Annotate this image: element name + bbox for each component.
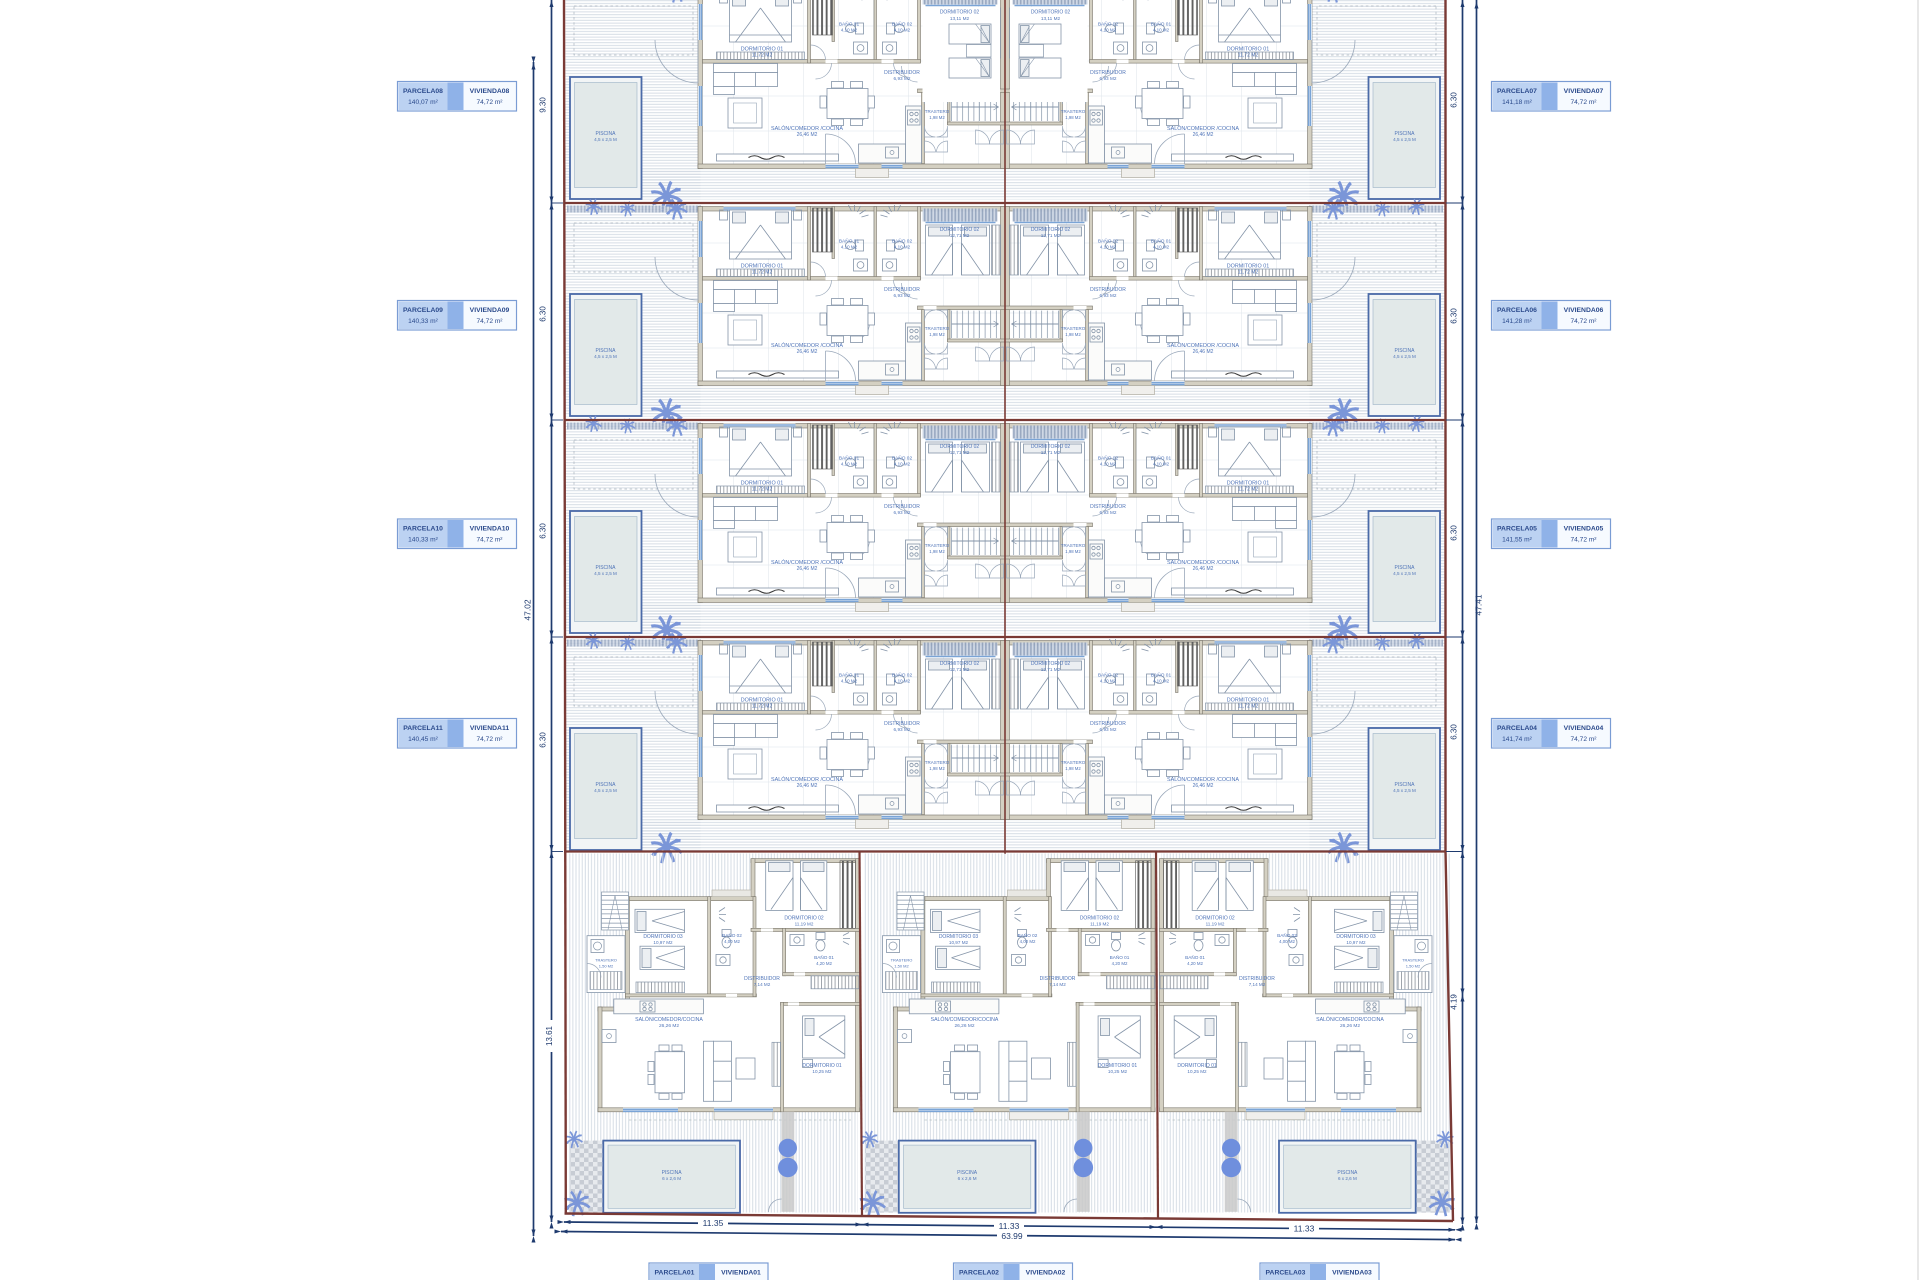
- svg-text:26,46 M2: 26,46 M2: [1193, 566, 1214, 572]
- svg-text:4,10 M2: 4,10 M2: [894, 462, 911, 467]
- svg-text:13,11 M2: 13,11 M2: [950, 16, 970, 21]
- svg-text:4,10 M2: 4,10 M2: [1100, 28, 1117, 33]
- svg-text:VIVIENDA01: VIVIENDA01: [721, 1270, 761, 1277]
- svg-text:74,72 m²: 74,72 m²: [1570, 99, 1597, 106]
- svg-text:11,19 M2: 11,19 M2: [1090, 922, 1109, 927]
- svg-text:10,97 M2: 10,97 M2: [653, 940, 673, 945]
- svg-text:10,25 M2: 10,25 M2: [812, 1069, 832, 1074]
- svg-text:DORMITORIO 02: DORMITORIO 02: [940, 227, 980, 233]
- svg-text:DORMITORIO 01: DORMITORIO 01: [741, 481, 783, 487]
- svg-text:BAÑO 01: BAÑO 01: [839, 21, 860, 28]
- svg-text:DORMITORIO 02: DORMITORIO 02: [1031, 444, 1071, 450]
- svg-text:4,10 M2: 4,10 M2: [841, 679, 858, 684]
- svg-text:4,5 x 2,5 M: 4,5 x 2,5 M: [1393, 788, 1416, 793]
- svg-text:BAÑO 01: BAÑO 01: [839, 455, 860, 462]
- svg-text:7,14 M2: 7,14 M2: [754, 982, 771, 987]
- svg-text:PARCELA07: PARCELA07: [1497, 88, 1537, 95]
- svg-text:4,10 M2: 4,10 M2: [841, 245, 858, 250]
- svg-text:DORMITORIO 02: DORMITORIO 02: [1195, 916, 1235, 922]
- svg-text:TRASTERO: TRASTERO: [595, 958, 617, 963]
- svg-text:4,5 x 2,5 M: 4,5 x 2,5 M: [1393, 571, 1416, 576]
- svg-text:11,72 M2: 11,72 M2: [752, 53, 773, 59]
- svg-text:4,10 M2: 4,10 M2: [1153, 462, 1170, 467]
- svg-text:6 x 2,6 M: 6 x 2,6 M: [1338, 1176, 1357, 1181]
- svg-text:1,50 M2: 1,50 M2: [894, 964, 909, 969]
- svg-text:7,14 M2: 7,14 M2: [1249, 982, 1266, 987]
- svg-text:PARCELA08: PARCELA08: [403, 88, 443, 95]
- svg-text:63.99: 63.99: [1001, 1231, 1023, 1241]
- svg-text:DORMITORIO 01: DORMITORIO 01: [741, 264, 783, 270]
- svg-text:4,10 M2: 4,10 M2: [894, 679, 911, 684]
- svg-text:6.30: 6.30: [1450, 308, 1459, 324]
- svg-text:PISCINA: PISCINA: [1394, 131, 1415, 137]
- svg-text:9.30: 9.30: [539, 97, 548, 113]
- svg-text:140,45 m²: 140,45 m²: [408, 736, 438, 743]
- svg-text:4,10 M2: 4,10 M2: [1100, 245, 1117, 250]
- svg-text:11,19 M2: 11,19 M2: [795, 922, 814, 927]
- svg-text:141,28 m²: 141,28 m²: [1502, 318, 1532, 325]
- svg-text:6.30: 6.30: [539, 306, 548, 322]
- svg-text:74,72 m²: 74,72 m²: [1570, 318, 1597, 325]
- svg-text:PISCINA: PISCINA: [595, 131, 616, 137]
- svg-text:10,25 M2: 10,25 M2: [1187, 1069, 1207, 1074]
- svg-text:BAÑO 02: BAÑO 02: [1098, 21, 1119, 28]
- svg-text:DORMITORIO 02: DORMITORIO 02: [1031, 227, 1071, 233]
- svg-text:10,97 M2: 10,97 M2: [1346, 940, 1366, 945]
- svg-text:PARCELA03: PARCELA03: [1266, 1270, 1306, 1277]
- svg-text:TRASTERO: TRASTERO: [925, 760, 950, 765]
- svg-text:74,72 m²: 74,72 m²: [1570, 736, 1597, 743]
- svg-text:PARCELA01: PARCELA01: [655, 1270, 695, 1277]
- svg-text:12,71 M2: 12,71 M2: [950, 450, 970, 455]
- svg-text:DISTRIBUIDOR: DISTRIBUIDOR: [1090, 70, 1126, 76]
- svg-text:DORMITORIO 01: DORMITORIO 01: [1098, 1063, 1138, 1069]
- svg-text:6,93 M2: 6,93 M2: [1100, 293, 1117, 298]
- svg-text:BAÑO 02: BAÑO 02: [892, 672, 913, 679]
- svg-text:SALÓN/COMEDOR/COCINA: SALÓN/COMEDOR/COCINA: [931, 1016, 999, 1023]
- svg-text:BAÑO 02: BAÑO 02: [1098, 672, 1119, 679]
- svg-text:BAÑO 01: BAÑO 01: [839, 672, 860, 679]
- svg-text:DISTRIBUIDOR: DISTRIBUIDOR: [884, 70, 920, 76]
- svg-text:SALÓN/COMEDOR/COCINA: SALÓN/COMEDOR/COCINA: [1316, 1016, 1384, 1023]
- svg-text:DISTRIBUIDOR: DISTRIBUIDOR: [1090, 287, 1126, 293]
- svg-text:4,5 x 2,5 M: 4,5 x 2,5 M: [1393, 137, 1416, 142]
- svg-text:1,50 M2: 1,50 M2: [1406, 964, 1421, 969]
- svg-text:VIVIENDA06: VIVIENDA06: [1564, 307, 1604, 314]
- svg-text:VIVIENDA11: VIVIENDA11: [470, 725, 510, 732]
- svg-text:26,26 M2: 26,26 M2: [659, 1023, 679, 1029]
- svg-text:PARCELA09: PARCELA09: [403, 307, 443, 314]
- svg-text:4,20 M2: 4,20 M2: [816, 961, 832, 966]
- svg-text:BAÑO 02: BAÑO 02: [1277, 932, 1297, 938]
- svg-text:TRASTERO: TRASTERO: [1402, 958, 1424, 963]
- svg-text:BAÑO 02: BAÑO 02: [1098, 455, 1119, 462]
- svg-text:SALÓN/COMEDOR /COCINA: SALÓN/COMEDOR /COCINA: [1167, 776, 1239, 783]
- svg-text:SALÓN/COMEDOR /COCINA: SALÓN/COMEDOR /COCINA: [1167, 125, 1239, 132]
- svg-text:BAÑO 01: BAÑO 01: [1110, 954, 1130, 960]
- svg-text:140,07 m²: 140,07 m²: [408, 99, 438, 106]
- svg-text:BAÑO 02: BAÑO 02: [1018, 932, 1038, 938]
- svg-text:TRASTERO: TRASTERO: [925, 543, 950, 548]
- svg-text:1,50 M2: 1,50 M2: [599, 964, 614, 969]
- svg-text:DISTRIBUIDOR: DISTRIBUIDOR: [744, 976, 780, 982]
- svg-text:13,11 M2: 13,11 M2: [1041, 16, 1061, 21]
- svg-text:4,10 M2: 4,10 M2: [1100, 462, 1117, 467]
- svg-text:10,97 M2: 10,97 M2: [949, 940, 969, 945]
- svg-text:DISTRIBUIDOR: DISTRIBUIDOR: [1090, 504, 1126, 510]
- svg-text:BAÑO 02: BAÑO 02: [892, 455, 913, 462]
- svg-text:DORMITORIO 01: DORMITORIO 01: [802, 1063, 842, 1069]
- svg-text:DORMITORIO 03: DORMITORIO 03: [939, 934, 979, 940]
- svg-text:PARCELA02: PARCELA02: [959, 1270, 999, 1277]
- svg-text:SALÓN/COMEDOR/COCINA: SALÓN/COMEDOR/COCINA: [635, 1016, 703, 1023]
- svg-text:6,93 M2: 6,93 M2: [894, 510, 911, 515]
- svg-text:4,5 x 2,5 M: 4,5 x 2,5 M: [594, 788, 617, 793]
- svg-text:PARCELA11: PARCELA11: [403, 725, 443, 732]
- svg-text:11,72 M2: 11,72 M2: [1238, 704, 1259, 710]
- svg-text:4,00 M2: 4,00 M2: [1020, 939, 1036, 944]
- svg-text:DORMITORIO 02: DORMITORIO 02: [1031, 661, 1071, 667]
- svg-text:SALÓN/COMEDOR /COCINA: SALÓN/COMEDOR /COCINA: [1167, 559, 1239, 566]
- svg-text:SALÓN/COMEDOR /COCINA: SALÓN/COMEDOR /COCINA: [771, 776, 843, 783]
- svg-text:PISCINA: PISCINA: [1394, 348, 1415, 354]
- svg-text:PISCINA: PISCINA: [595, 565, 616, 571]
- svg-text:DORMITORIO 01: DORMITORIO 01: [1227, 481, 1269, 487]
- svg-text:11,72 M2: 11,72 M2: [1238, 270, 1259, 276]
- svg-text:DORMITORIO 01: DORMITORIO 01: [1177, 1063, 1217, 1069]
- svg-text:DISTRIBUIDOR: DISTRIBUIDOR: [884, 721, 920, 727]
- svg-text:DORMITORIO 03: DORMITORIO 03: [643, 934, 683, 940]
- svg-text:4,5 x 2,5 M: 4,5 x 2,5 M: [594, 354, 617, 359]
- svg-text:4,5 x 2,5 M: 4,5 x 2,5 M: [594, 137, 617, 142]
- svg-text:BAÑO 02: BAÑO 02: [892, 21, 913, 28]
- svg-text:6 x 2,6 M: 6 x 2,6 M: [662, 1176, 681, 1181]
- svg-text:6.30: 6.30: [539, 732, 548, 748]
- svg-text:DORMITORIO 02: DORMITORIO 02: [784, 916, 824, 922]
- svg-text:BAÑO 01: BAÑO 01: [1151, 672, 1172, 679]
- svg-text:11.35: 11.35: [703, 1218, 724, 1228]
- svg-text:1,98 M2: 1,98 M2: [929, 115, 945, 120]
- svg-text:6.30: 6.30: [1450, 525, 1459, 541]
- svg-text:SALÓN/COMEDOR /COCINA: SALÓN/COMEDOR /COCINA: [771, 559, 843, 566]
- svg-text:BAÑO 02: BAÑO 02: [722, 932, 742, 938]
- svg-text:BAÑO 01: BAÑO 01: [839, 238, 860, 245]
- svg-text:4,5 x 2,5 M: 4,5 x 2,5 M: [1393, 354, 1416, 359]
- svg-text:141,74 m²: 141,74 m²: [1502, 736, 1532, 743]
- svg-text:PARCELA06: PARCELA06: [1497, 307, 1537, 314]
- svg-text:141,55 m²: 141,55 m²: [1502, 537, 1532, 544]
- svg-text:DORMITORIO 02: DORMITORIO 02: [940, 444, 980, 450]
- svg-text:11,72 M2: 11,72 M2: [1238, 53, 1259, 59]
- svg-text:6,93 M2: 6,93 M2: [1100, 76, 1117, 81]
- svg-text:VIVIENDA07: VIVIENDA07: [1564, 88, 1604, 95]
- svg-text:PISCINA: PISCINA: [1337, 1170, 1358, 1176]
- svg-text:4,10 M2: 4,10 M2: [894, 28, 911, 33]
- svg-text:DORMITORIO 02: DORMITORIO 02: [940, 661, 980, 667]
- svg-text:74,72 m²: 74,72 m²: [476, 736, 503, 743]
- svg-text:VIVIENDA04: VIVIENDA04: [1564, 725, 1604, 732]
- svg-text:6,93 M2: 6,93 M2: [1100, 727, 1117, 732]
- svg-text:140,33 m²: 140,33 m²: [408, 318, 438, 325]
- svg-text:26,26 M2: 26,26 M2: [1340, 1023, 1360, 1029]
- svg-text:12,71 M2: 12,71 M2: [1041, 233, 1061, 238]
- svg-text:6,93 M2: 6,93 M2: [894, 727, 911, 732]
- svg-text:26,46 M2: 26,46 M2: [797, 132, 818, 138]
- svg-text:6 x 2,6 M: 6 x 2,6 M: [958, 1176, 977, 1181]
- svg-text:26,46 M2: 26,46 M2: [797, 783, 818, 789]
- svg-text:PARCELA05: PARCELA05: [1497, 526, 1537, 533]
- svg-text:26,46 M2: 26,46 M2: [1193, 132, 1214, 138]
- svg-text:DISTRIBUIDOR: DISTRIBUIDOR: [1090, 721, 1126, 727]
- svg-text:13.61: 13.61: [545, 1025, 554, 1046]
- svg-text:DORMITORIO 01: DORMITORIO 01: [741, 47, 783, 53]
- svg-text:BAÑO 02: BAÑO 02: [892, 238, 913, 245]
- svg-text:DISTRIBUIDOR: DISTRIBUIDOR: [1040, 976, 1076, 982]
- svg-text:VIVIENDA08: VIVIENDA08: [470, 88, 510, 95]
- svg-text:74,72 m²: 74,72 m²: [1570, 537, 1597, 544]
- svg-text:74,72 m²: 74,72 m²: [476, 318, 503, 325]
- svg-text:DORMITORIO 03: DORMITORIO 03: [1336, 934, 1376, 940]
- svg-text:PISCINA: PISCINA: [595, 348, 616, 354]
- svg-text:PISCINA: PISCINA: [957, 1170, 978, 1176]
- svg-text:1,98 M2: 1,98 M2: [929, 332, 945, 337]
- svg-text:4,00 M2: 4,00 M2: [724, 939, 740, 944]
- svg-text:1,98 M2: 1,98 M2: [1065, 332, 1081, 337]
- svg-text:DORMITORIO 01: DORMITORIO 01: [1227, 264, 1269, 270]
- svg-text:4,10 M2: 4,10 M2: [1100, 679, 1117, 684]
- svg-text:12,71 M2: 12,71 M2: [950, 667, 970, 672]
- svg-text:TRASTERO: TRASTERO: [891, 958, 913, 963]
- svg-text:DORMITORIO 01: DORMITORIO 01: [741, 698, 783, 704]
- svg-text:4,10 M2: 4,10 M2: [894, 245, 911, 250]
- svg-text:47.02: 47.02: [523, 599, 533, 621]
- svg-text:TRASTERO: TRASTERO: [925, 326, 950, 331]
- svg-text:11,72 M2: 11,72 M2: [752, 487, 773, 493]
- svg-text:1,98 M2: 1,98 M2: [1065, 549, 1081, 554]
- svg-text:SALÓN/COMEDOR /COCINA: SALÓN/COMEDOR /COCINA: [1167, 342, 1239, 349]
- svg-text:26,46 M2: 26,46 M2: [797, 566, 818, 572]
- svg-text:4,10 M2: 4,10 M2: [1153, 28, 1170, 33]
- svg-text:11,72 M2: 11,72 M2: [1238, 487, 1259, 493]
- svg-text:4,00 M2: 4,00 M2: [1279, 939, 1295, 944]
- svg-text:BAÑO 01: BAÑO 01: [1151, 21, 1172, 28]
- svg-text:6,93 M2: 6,93 M2: [894, 293, 911, 298]
- svg-text:26,46 M2: 26,46 M2: [1193, 783, 1214, 789]
- svg-text:26,46 M2: 26,46 M2: [797, 349, 818, 355]
- svg-text:74,72 m²: 74,72 m²: [476, 537, 503, 544]
- svg-text:1,98 M2: 1,98 M2: [929, 766, 945, 771]
- svg-text:PISCINA: PISCINA: [595, 782, 616, 788]
- svg-text:4,5 x 2,5 M: 4,5 x 2,5 M: [594, 571, 617, 576]
- svg-text:6.30: 6.30: [539, 523, 548, 539]
- svg-text:1,98 M2: 1,98 M2: [929, 549, 945, 554]
- svg-text:BAÑO 01: BAÑO 01: [1185, 954, 1205, 960]
- svg-text:74,72 m²: 74,72 m²: [476, 99, 503, 106]
- svg-text:12,71 M2: 12,71 M2: [950, 233, 970, 238]
- svg-text:VIVIENDA02: VIVIENDA02: [1026, 1270, 1066, 1277]
- svg-text:VIVIENDA09: VIVIENDA09: [470, 307, 510, 314]
- svg-text:TRASTERO: TRASTERO: [1061, 543, 1086, 548]
- svg-text:141,18 m²: 141,18 m²: [1502, 99, 1532, 106]
- svg-text:1,98 M2: 1,98 M2: [1065, 766, 1081, 771]
- svg-text:11,19 M2: 11,19 M2: [1206, 922, 1225, 927]
- svg-text:12,71 M2: 12,71 M2: [1041, 450, 1061, 455]
- svg-text:PARCELA04: PARCELA04: [1497, 725, 1537, 732]
- svg-text:11,72 M2: 11,72 M2: [752, 704, 773, 710]
- svg-text:BAÑO 02: BAÑO 02: [1098, 238, 1119, 245]
- svg-text:TRASTERO: TRASTERO: [1061, 109, 1086, 114]
- svg-text:DISTRIBUIDOR: DISTRIBUIDOR: [884, 287, 920, 293]
- svg-text:26,46 M2: 26,46 M2: [1193, 349, 1214, 355]
- svg-text:12,71 M2: 12,71 M2: [1041, 667, 1061, 672]
- svg-text:10,25 M2: 10,25 M2: [1108, 1069, 1128, 1074]
- svg-text:4.19: 4.19: [1450, 994, 1459, 1010]
- svg-text:BAÑO 01: BAÑO 01: [1151, 238, 1172, 245]
- svg-text:DISTRIBUIDOR: DISTRIBUIDOR: [884, 504, 920, 510]
- svg-text:4,10 M2: 4,10 M2: [841, 28, 858, 33]
- svg-text:TRASTERO: TRASTERO: [1061, 326, 1086, 331]
- svg-text:SALÓN/COMEDOR /COCINA: SALÓN/COMEDOR /COCINA: [771, 342, 843, 349]
- svg-text:4,10 M2: 4,10 M2: [1153, 245, 1170, 250]
- svg-text:7,14 M2: 7,14 M2: [1049, 982, 1066, 987]
- svg-text:1,98 M2: 1,98 M2: [1065, 115, 1081, 120]
- svg-text:6,93 M2: 6,93 M2: [894, 76, 911, 81]
- svg-text:TRASTERO: TRASTERO: [925, 109, 950, 114]
- svg-text:DORMITORIO 02: DORMITORIO 02: [940, 10, 980, 16]
- svg-text:PARCELA10: PARCELA10: [403, 526, 443, 533]
- svg-text:11,72 M2: 11,72 M2: [752, 270, 773, 276]
- svg-text:PISCINA: PISCINA: [1394, 782, 1415, 788]
- svg-text:26,26 M2: 26,26 M2: [954, 1023, 974, 1029]
- svg-text:DORMITORIO 01: DORMITORIO 01: [1227, 47, 1269, 53]
- svg-text:11.33: 11.33: [999, 1221, 1020, 1231]
- svg-text:TRASTERO: TRASTERO: [1061, 760, 1086, 765]
- svg-text:VIVIENDA10: VIVIENDA10: [470, 526, 510, 533]
- svg-text:VIVIENDA03: VIVIENDA03: [1332, 1270, 1372, 1277]
- svg-text:6,93 M2: 6,93 M2: [1100, 510, 1117, 515]
- svg-text:11.33: 11.33: [1294, 1224, 1315, 1234]
- svg-text:4,20 M2: 4,20 M2: [1187, 961, 1203, 966]
- svg-text:PISCINA: PISCINA: [662, 1170, 683, 1176]
- svg-text:BAÑO 01: BAÑO 01: [814, 954, 834, 960]
- svg-text:DORMITORIO 02: DORMITORIO 02: [1080, 916, 1120, 922]
- svg-text:6.30: 6.30: [1450, 92, 1459, 108]
- svg-text:SALÓN/COMEDOR /COCINA: SALÓN/COMEDOR /COCINA: [771, 125, 843, 132]
- svg-text:47.41: 47.41: [1474, 594, 1484, 616]
- svg-text:4,10 M2: 4,10 M2: [841, 462, 858, 467]
- svg-text:DORMITORIO 01: DORMITORIO 01: [1227, 698, 1269, 704]
- svg-text:140,33 m²: 140,33 m²: [408, 537, 438, 544]
- svg-text:4,20 M2: 4,20 M2: [1112, 961, 1128, 966]
- svg-text:BAÑO 01: BAÑO 01: [1151, 455, 1172, 462]
- svg-text:PISCINA: PISCINA: [1394, 565, 1415, 571]
- svg-text:DORMITORIO 02: DORMITORIO 02: [1031, 10, 1071, 16]
- svg-text:DISTRIBUIDOR: DISTRIBUIDOR: [1239, 976, 1275, 982]
- svg-text:VIVIENDA05: VIVIENDA05: [1564, 526, 1604, 533]
- svg-text:6.30: 6.30: [1450, 724, 1459, 740]
- svg-text:4,10 M2: 4,10 M2: [1153, 679, 1170, 684]
